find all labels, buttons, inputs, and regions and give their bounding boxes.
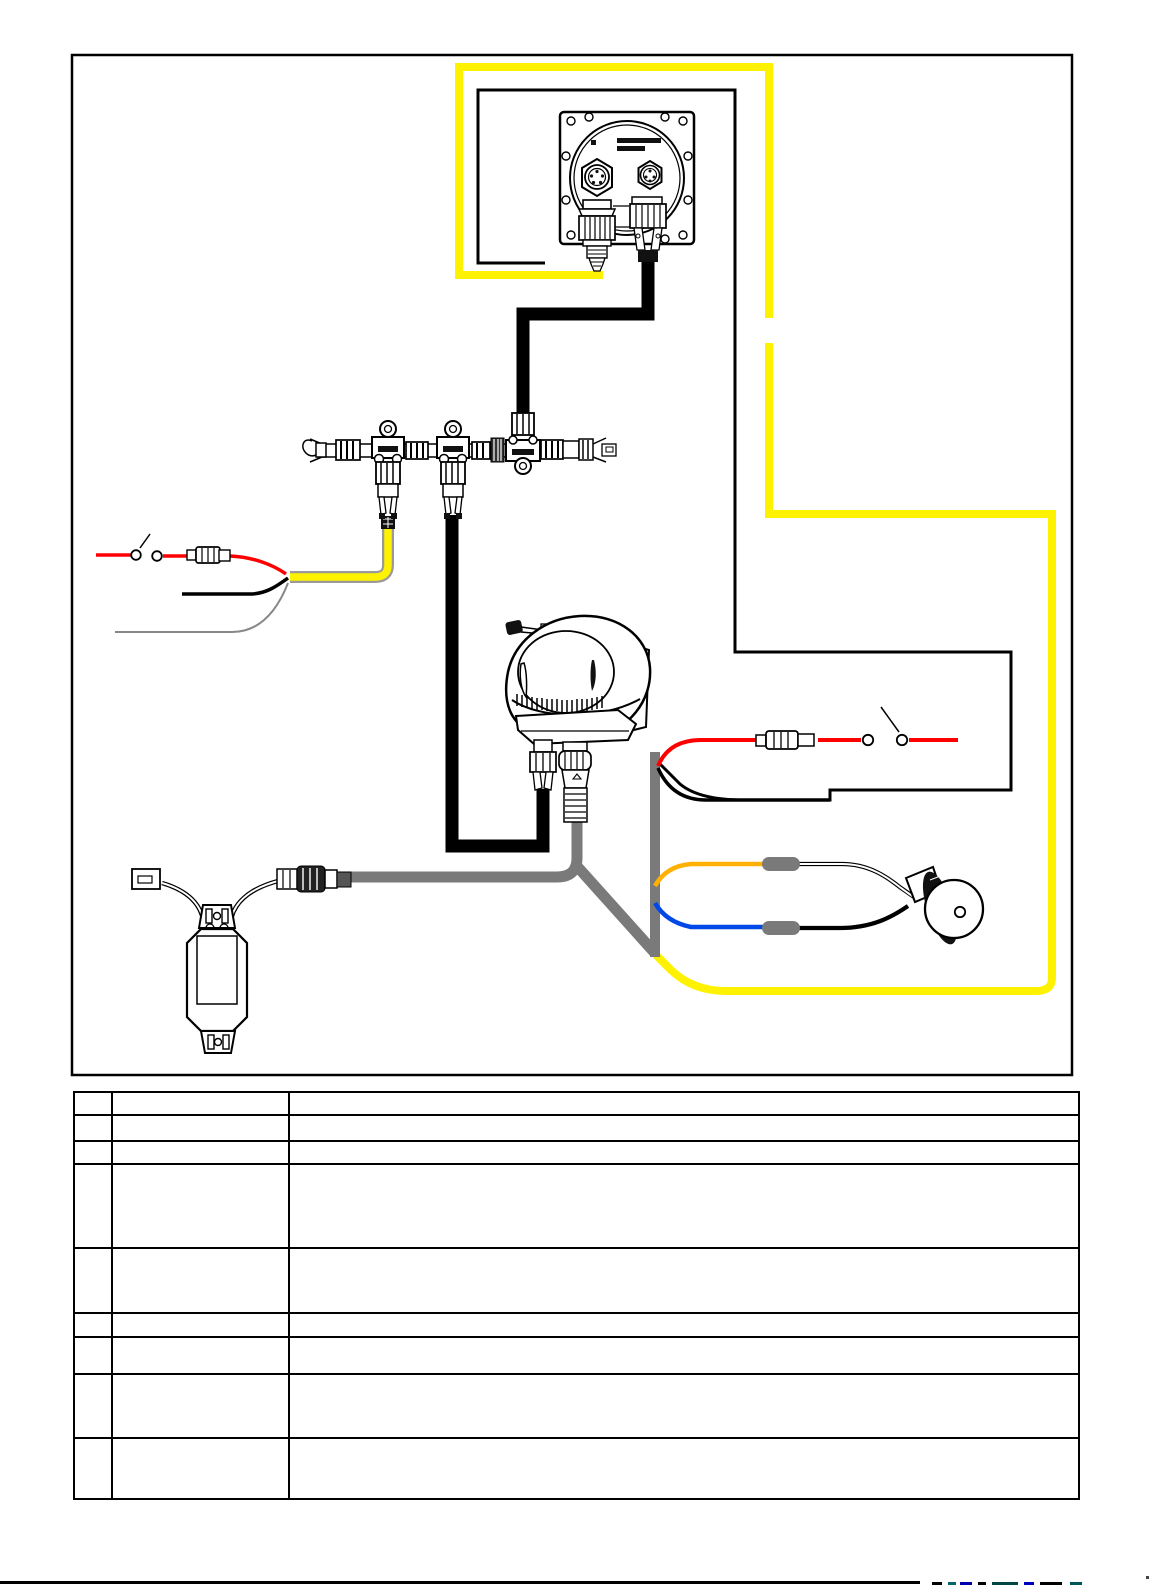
table-cell-name <box>113 1116 290 1140</box>
table-row <box>75 1165 1078 1249</box>
terminator-right <box>563 438 616 462</box>
table-cell-num <box>75 1439 113 1498</box>
table-cell-num <box>75 1165 113 1247</box>
gauge-power-plug <box>579 200 615 271</box>
table-cell-name <box>113 1439 290 1498</box>
table-cell-num <box>75 1116 113 1140</box>
footer-rule <box>0 1581 920 1584</box>
table-cell-name <box>113 1093 290 1114</box>
table-cell-name <box>113 1375 290 1437</box>
table-cell-num <box>75 1142 113 1163</box>
table-cell-desc <box>290 1439 1078 1498</box>
table-cell-num <box>75 1338 113 1373</box>
buzzer-wire-orange <box>655 864 764 886</box>
module-breakout-connector <box>132 869 160 889</box>
table-cell-name <box>113 1142 290 1163</box>
terminator-left <box>303 439 326 462</box>
table-cell-num <box>75 1375 113 1437</box>
pump-connector-right <box>559 742 591 822</box>
table-row <box>75 1314 1078 1338</box>
table-row <box>75 1375 1078 1439</box>
buzzer-wire-black <box>798 906 908 928</box>
table-row <box>75 1116 1078 1142</box>
power-switch-right <box>863 707 907 745</box>
table-cell-desc <box>290 1314 1078 1336</box>
module-body <box>187 905 247 1053</box>
page-mark-dot <box>1146 1576 1149 1579</box>
table-cell-desc <box>290 1116 1078 1140</box>
pump-motor-unit <box>505 616 650 822</box>
tee-connector-2 <box>437 421 469 519</box>
inline-fuse-left <box>187 547 230 563</box>
buzzer-wire-blue <box>655 903 764 927</box>
table-row <box>75 1249 1078 1314</box>
tee-connector-3 <box>506 413 540 474</box>
ground-wire-black-right <box>658 768 830 800</box>
gray-breakout-trunk <box>351 752 655 957</box>
table-cell-desc <box>290 1375 1078 1437</box>
table-cell-name <box>113 1338 290 1373</box>
table-cell-desc <box>290 1249 1078 1312</box>
shield-wire-gray-left <box>115 583 288 632</box>
table-row <box>75 1093 1078 1116</box>
ground-wire-black-left <box>182 578 288 594</box>
tee-connector-1 <box>372 421 404 519</box>
butt-splice-blue <box>762 921 800 935</box>
table-cell-num <box>75 1314 113 1336</box>
table-cell-desc <box>290 1093 1078 1114</box>
parts-table <box>73 1091 1080 1500</box>
table-cell-desc <box>290 1142 1078 1163</box>
buzzer <box>906 867 983 948</box>
table-cell-name <box>113 1314 290 1336</box>
table-cell-num <box>75 1249 113 1312</box>
power-switch-left <box>131 534 162 561</box>
round-cable-connector <box>277 866 351 892</box>
table-cell-desc <box>290 1165 1078 1247</box>
gauge-connector-left <box>582 159 612 196</box>
gauge-connector-right <box>639 161 662 189</box>
manual-page <box>0 0 1153 1585</box>
table-cell-desc <box>290 1338 1078 1373</box>
display-gauge <box>560 112 694 271</box>
buzzer-wire-white <box>798 864 917 899</box>
table-cell-num <box>75 1093 113 1114</box>
butt-splice-orange <box>762 857 800 871</box>
pump-connector-left <box>530 752 556 790</box>
control-module <box>132 866 351 1053</box>
table-row <box>75 1338 1078 1375</box>
table-cell-name <box>113 1165 290 1247</box>
gauge-label-text <box>617 138 661 143</box>
table-row <box>75 1439 1078 1498</box>
nmea-backbone-row <box>303 413 616 519</box>
table-row <box>75 1142 1078 1165</box>
inline-fuse-right <box>756 731 814 749</box>
table-cell-name <box>113 1249 290 1312</box>
power-cable-yellow-left <box>290 516 395 577</box>
